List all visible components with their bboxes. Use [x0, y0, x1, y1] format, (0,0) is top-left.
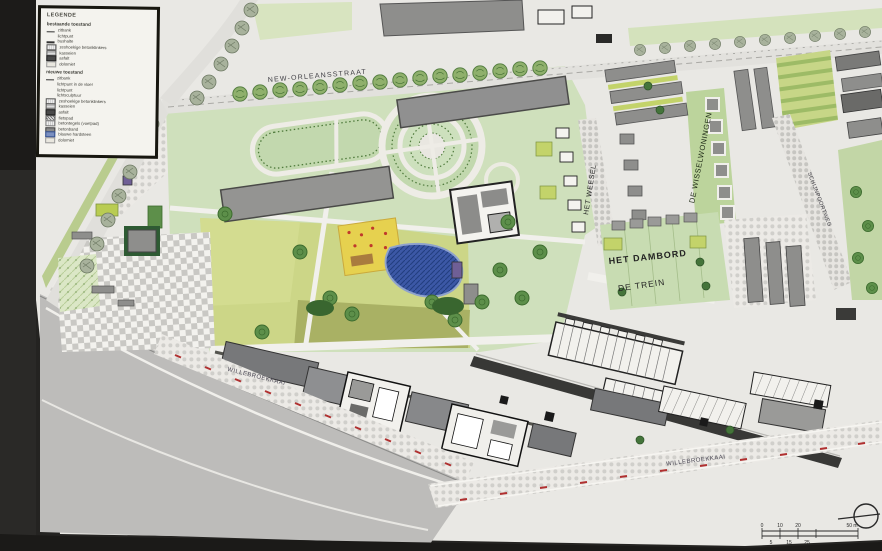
legend-title: LEGENDE [47, 12, 153, 19]
scale-mark: 0 [761, 523, 764, 529]
plaza-right [724, 214, 816, 308]
light-sculpture-icon [46, 94, 54, 98]
floor-light-icon [46, 82, 54, 86]
legend: LEGENDE bestaande toestand zitbank licht… [36, 5, 160, 159]
bench-icon [46, 79, 54, 80]
masterplan-photo: NEW-ORLEANSSTRAAT HET WEESEL DE WISSELWO… [0, 0, 882, 551]
scale-mark: 15 [786, 540, 792, 546]
scale-mark: 25 [804, 540, 810, 546]
scale-mark: 10 [777, 523, 783, 529]
legend-item: dolomiet [46, 61, 152, 68]
bus-stop-icon [47, 41, 55, 43]
photo-edge-topleft [0, 0, 36, 170]
scale-mark: 20 [795, 523, 801, 529]
concrete-tiles-icon [45, 120, 55, 126]
light-point-icon [46, 88, 54, 92]
scale-mark: 5 [770, 540, 773, 546]
bench-icon [47, 31, 55, 32]
dolomite-icon [45, 137, 55, 143]
legend-item: dolomiet [45, 137, 151, 144]
light-point-icon [47, 34, 55, 38]
scale-mark: 50 m [846, 523, 857, 529]
dolomite-icon [46, 61, 56, 67]
